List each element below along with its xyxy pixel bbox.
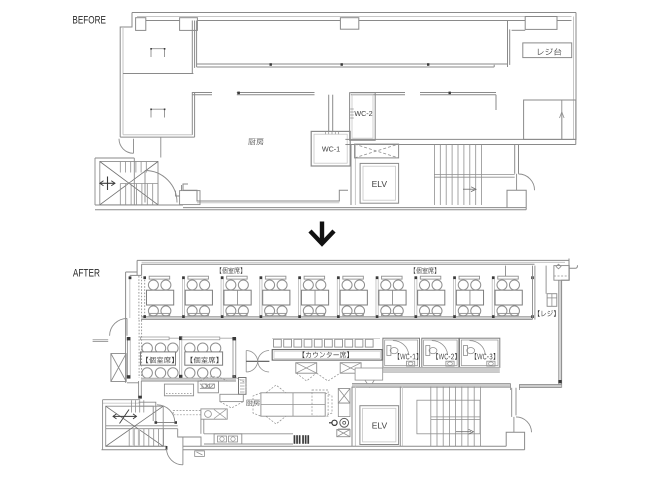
svg-text:ELV: ELV bbox=[372, 179, 388, 189]
svg-text:BEFORE: BEFORE bbox=[72, 14, 106, 26]
svg-text:WC-1: WC-1 bbox=[322, 144, 340, 153]
svg-text:WC-2: WC-2 bbox=[354, 109, 372, 118]
svg-text:AFTER: AFTER bbox=[73, 267, 100, 279]
svg-text:ELV: ELV bbox=[372, 421, 388, 431]
